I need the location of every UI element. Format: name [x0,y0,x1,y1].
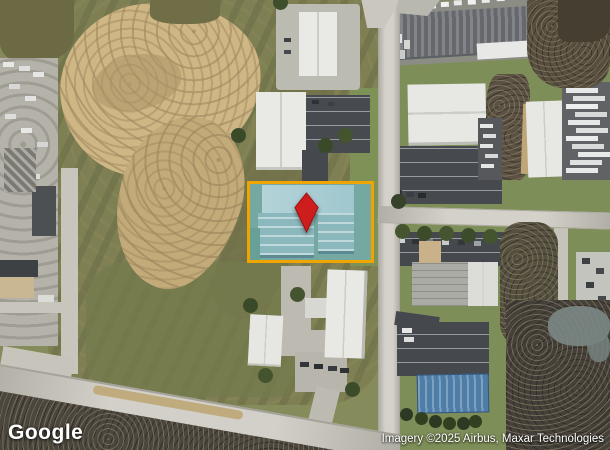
trucks-lot-se [402,328,412,333]
main-road-vertical [378,0,400,450]
office-mid-roof [412,262,470,306]
left-driveway [0,302,62,313]
office-mid-tan-unit [419,241,441,263]
warehouse-top-center [299,12,340,76]
parcel-lawn-tint [250,228,260,260]
dark-roof-building-left [0,260,38,277]
dock-trucks [480,124,493,128]
warehouse-ne-white-wall [477,40,532,59]
parked-cars-apron [284,38,291,42]
blue-roof-building [417,373,490,413]
office-east-roof [407,83,486,145]
yard-clutter [4,148,36,192]
shed-south-roof [248,314,284,367]
trailer-yard [562,82,610,180]
parcel-building-b [318,213,354,254]
marsh-pond-small [588,332,610,362]
imagery-attribution: Imagery ©2025 Airbus, Maxar Technologies [382,433,604,445]
trailer-rows [566,88,598,93]
google-logo[interactable]: Google [8,421,83,445]
office-center-roof [256,92,306,170]
woods-top-right-dark [558,0,610,42]
parking-lot-east-mid [393,232,505,266]
bushes-row [400,408,413,421]
drive-to-parcel [302,150,328,182]
cars-lot-south [300,362,309,367]
cars-lot-center [312,100,319,104]
parcel-marker-icon[interactable] [294,192,319,233]
rooftop-units-far-east [582,258,590,264]
yard-trucks [3,62,14,67]
satellite-map-canvas[interactable]: Google Imagery ©2025 Airbus, Maxar Techn… [0,0,610,450]
yard-warehouse-roof [32,186,56,236]
tan-building-left [0,277,34,298]
left-access-road [61,168,78,374]
olive-patch-top-left [0,0,74,62]
olive-patch-top [150,0,220,24]
office-mid-wing [468,262,498,306]
long-building-south-roof [324,269,367,358]
